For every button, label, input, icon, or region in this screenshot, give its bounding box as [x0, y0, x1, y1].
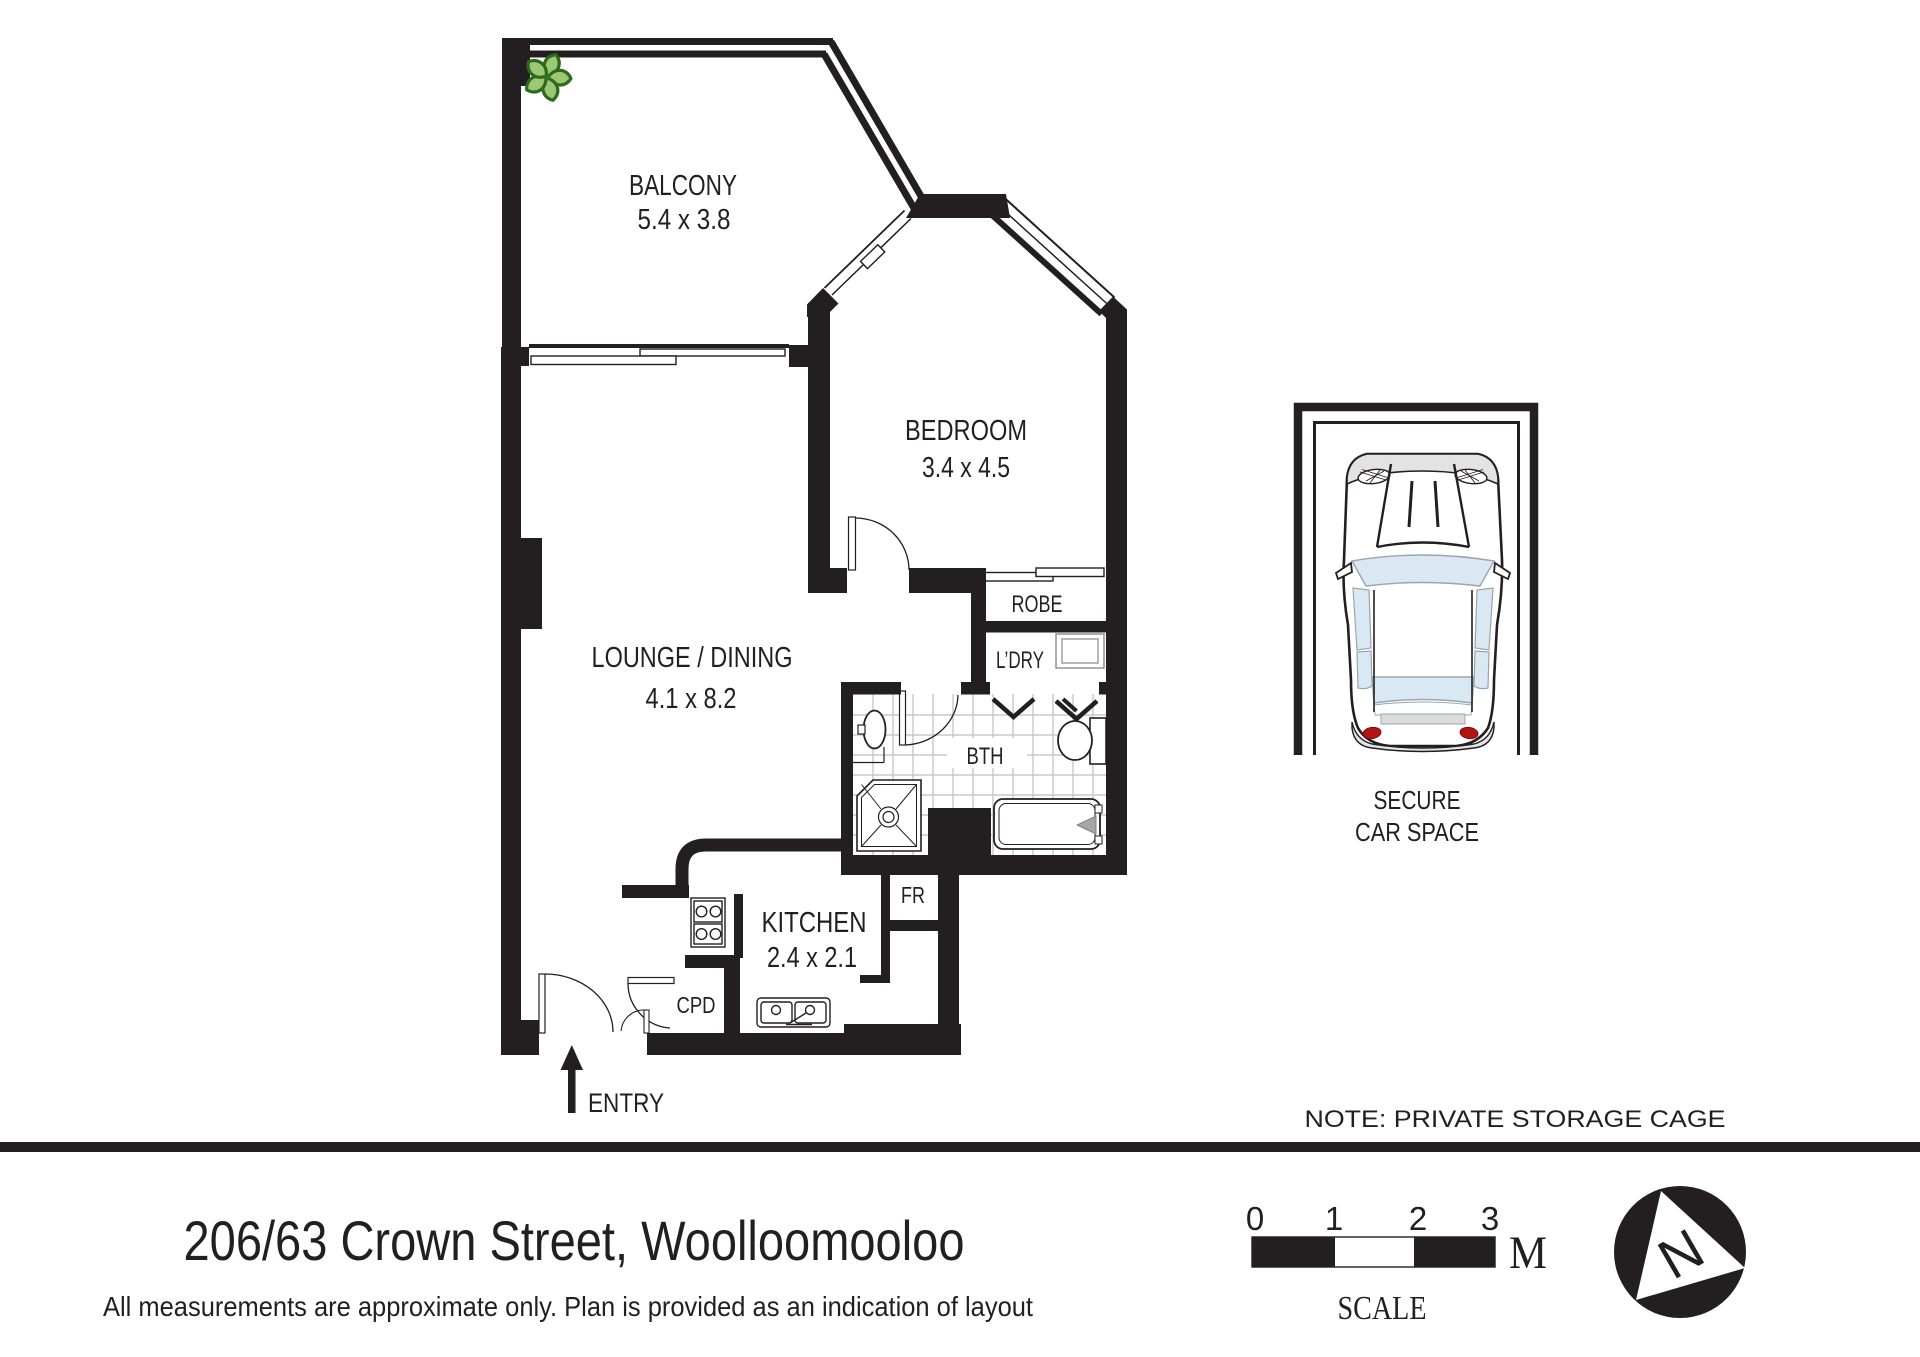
svg-text:0: 0 [1246, 1200, 1264, 1237]
svg-text:206/63 Crown Street, Woolloomo: 206/63 Crown Street, Woolloomooloo [184, 1209, 965, 1272]
svg-text:M: M [1509, 1227, 1547, 1279]
svg-text:ROBE: ROBE [1012, 591, 1063, 618]
svg-text:CAR SPACE: CAR SPACE [1355, 817, 1479, 847]
svg-text:ENTRY: ENTRY [588, 1088, 664, 1118]
svg-text:CPD: CPD [677, 992, 716, 1018]
svg-text:KITCHEN: KITCHEN [762, 907, 867, 939]
svg-text:BEDROOM: BEDROOM [905, 415, 1027, 447]
svg-text:3: 3 [1481, 1200, 1499, 1237]
svg-text:NOTE: PRIVATE STORAGE CAGE: NOTE: PRIVATE STORAGE CAGE [1305, 1106, 1726, 1133]
svg-text:BALCONY: BALCONY [629, 170, 737, 202]
svg-text:3.4 x 4.5: 3.4 x 4.5 [922, 452, 1010, 484]
svg-text:5.4 x 3.8: 5.4 x 3.8 [638, 204, 731, 236]
svg-text:1: 1 [1325, 1200, 1343, 1237]
svg-text:FR: FR [901, 882, 925, 908]
svg-text:LOUNGE / DINING: LOUNGE / DINING [592, 642, 793, 674]
svg-text:SECURE: SECURE [1374, 785, 1461, 815]
svg-text:SCALE: SCALE [1338, 1290, 1427, 1327]
svg-text:2.4 x 2.1: 2.4 x 2.1 [767, 942, 857, 974]
svg-text:All measurements are approxima: All measurements are approximate only. P… [103, 1291, 1033, 1322]
svg-text:L’DRY: L’DRY [996, 647, 1044, 674]
svg-text:2: 2 [1409, 1200, 1427, 1237]
svg-text:4.1 x 8.2: 4.1 x 8.2 [646, 683, 737, 715]
svg-text:BTH: BTH [967, 743, 1004, 770]
